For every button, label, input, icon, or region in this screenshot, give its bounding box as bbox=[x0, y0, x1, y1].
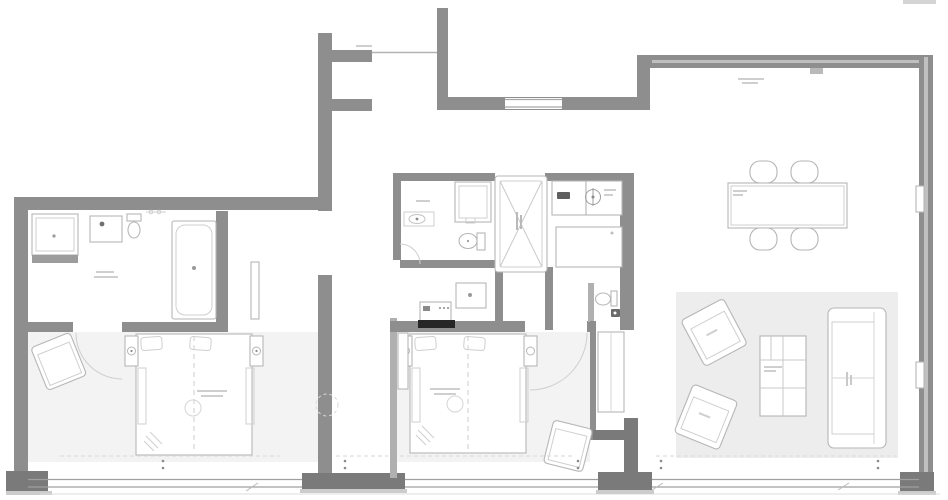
microtext bbox=[356, 45, 372, 47]
center-left-footing bbox=[302, 473, 405, 489]
right-wall-stripe bbox=[924, 57, 928, 473]
bathroom-2-left-wall bbox=[393, 173, 401, 260]
shower-half-wall bbox=[32, 255, 78, 263]
tick-dot bbox=[660, 460, 663, 463]
microtext bbox=[764, 370, 776, 372]
microtext-vertical bbox=[846, 372, 848, 386]
microtext bbox=[416, 200, 430, 202]
burner-dot bbox=[592, 196, 595, 199]
tick-dot bbox=[162, 467, 165, 470]
microtext bbox=[738, 78, 764, 80]
shaft-right-stub bbox=[545, 267, 553, 330]
closet-door-leaf bbox=[251, 262, 259, 319]
room-living-dining bbox=[674, 68, 886, 450]
bathroom-1-bottom-wall-left bbox=[28, 322, 73, 332]
knob bbox=[447, 307, 449, 309]
tick-dot bbox=[660, 467, 663, 470]
floor-plan-canvas bbox=[0, 0, 948, 500]
lightwell-left-wall bbox=[437, 8, 448, 110]
left-footing bbox=[6, 471, 48, 491]
center-left-footing-step bbox=[300, 489, 407, 493]
top-left-wall bbox=[14, 197, 322, 210]
washing-machine bbox=[420, 302, 451, 321]
tick-dot bbox=[344, 467, 347, 470]
dining-chair bbox=[750, 161, 777, 183]
microtext bbox=[742, 82, 758, 84]
bedroom-2-top-wall bbox=[390, 321, 525, 332]
tick-dot bbox=[577, 460, 580, 463]
microtext bbox=[430, 388, 460, 390]
washing-machine-panel bbox=[423, 306, 430, 311]
top-right-corner-mark bbox=[903, 0, 936, 4]
bathroom-1-bottom-wall-right bbox=[122, 322, 228, 332]
shower bbox=[32, 214, 78, 255]
left-wall bbox=[14, 197, 28, 473]
sink-basin bbox=[557, 192, 570, 199]
hallway bbox=[420, 283, 486, 321]
bathroom-1-right-wall bbox=[216, 211, 228, 330]
nightstand-right bbox=[524, 336, 537, 366]
entry-stub-lower bbox=[332, 99, 372, 111]
service-shaft bbox=[495, 176, 547, 272]
vanity-sink bbox=[90, 216, 122, 242]
lightwell-right-wall bbox=[637, 55, 650, 105]
bedroom-2-corridor-wall bbox=[390, 318, 397, 478]
toilet-tank bbox=[127, 214, 141, 221]
bathroom-2-bottom-wall bbox=[400, 260, 495, 268]
tv bbox=[418, 320, 455, 328]
radiator bbox=[398, 333, 408, 389]
lamp-right-dot bbox=[255, 350, 257, 352]
microtext bbox=[96, 271, 114, 273]
dining-chair bbox=[750, 228, 777, 250]
wc-toilet-bowl bbox=[596, 293, 611, 305]
right-wall-niche-2 bbox=[916, 362, 924, 388]
microtext-vertical bbox=[520, 215, 522, 229]
right-footing bbox=[900, 472, 934, 491]
center-right-footing bbox=[598, 472, 652, 490]
entry-pier-wall bbox=[318, 33, 332, 211]
tick-dot bbox=[877, 467, 880, 470]
center-right-footing-step bbox=[596, 490, 654, 494]
kitchen-top-wall bbox=[545, 173, 620, 181]
wc-toilet-tank bbox=[611, 291, 617, 306]
lamp-left-dot bbox=[130, 350, 132, 352]
top-right-wall-stripe bbox=[652, 60, 931, 63]
bathtub-drain bbox=[192, 266, 196, 270]
tick-dot bbox=[877, 460, 880, 463]
microtext bbox=[94, 276, 118, 278]
dining-chair bbox=[791, 161, 818, 183]
living-l-wall-vertical bbox=[624, 418, 638, 473]
dining-table bbox=[728, 183, 847, 228]
bathroom-2-top-wall bbox=[393, 173, 495, 181]
toilet-tank bbox=[477, 233, 485, 250]
appliance-dot bbox=[468, 293, 472, 297]
bedroom-1-corridor-wall bbox=[318, 275, 332, 473]
microtext bbox=[197, 390, 227, 392]
microtext-vertical bbox=[516, 212, 518, 230]
toilet-dot bbox=[467, 240, 469, 242]
shower-drain bbox=[52, 234, 55, 237]
wall-vent bbox=[810, 68, 823, 74]
microtext bbox=[604, 189, 616, 191]
tick-dot bbox=[344, 460, 347, 463]
sink-drain bbox=[416, 218, 419, 221]
bedroom-2-right-wall bbox=[590, 321, 596, 440]
microtext bbox=[201, 395, 223, 397]
microtext bbox=[764, 366, 782, 368]
wc-left-wall bbox=[588, 283, 594, 322]
microtext-vertical bbox=[850, 375, 852, 385]
microtext bbox=[604, 194, 613, 196]
vanity-faucet bbox=[100, 222, 105, 227]
room-kitchen bbox=[552, 181, 622, 317]
floor-plan-drawing bbox=[0, 0, 948, 500]
tick-dot bbox=[162, 460, 165, 463]
knob bbox=[443, 307, 445, 309]
wc-basin-dot bbox=[614, 312, 617, 315]
bottom-window-band bbox=[28, 472, 940, 494]
dining-chair bbox=[791, 228, 818, 250]
counter-right bbox=[586, 181, 622, 215]
microtext bbox=[733, 190, 747, 192]
microtext bbox=[733, 194, 743, 196]
microtext bbox=[434, 393, 456, 395]
entry-stub-upper bbox=[332, 50, 372, 62]
right-wall-niche-1 bbox=[916, 186, 924, 212]
knob bbox=[439, 307, 441, 309]
shower bbox=[455, 182, 491, 222]
tick-dot bbox=[577, 467, 580, 470]
island-dot bbox=[611, 232, 614, 235]
toilet-bowl bbox=[128, 222, 140, 238]
room-bathroom-2 bbox=[400, 182, 491, 264]
